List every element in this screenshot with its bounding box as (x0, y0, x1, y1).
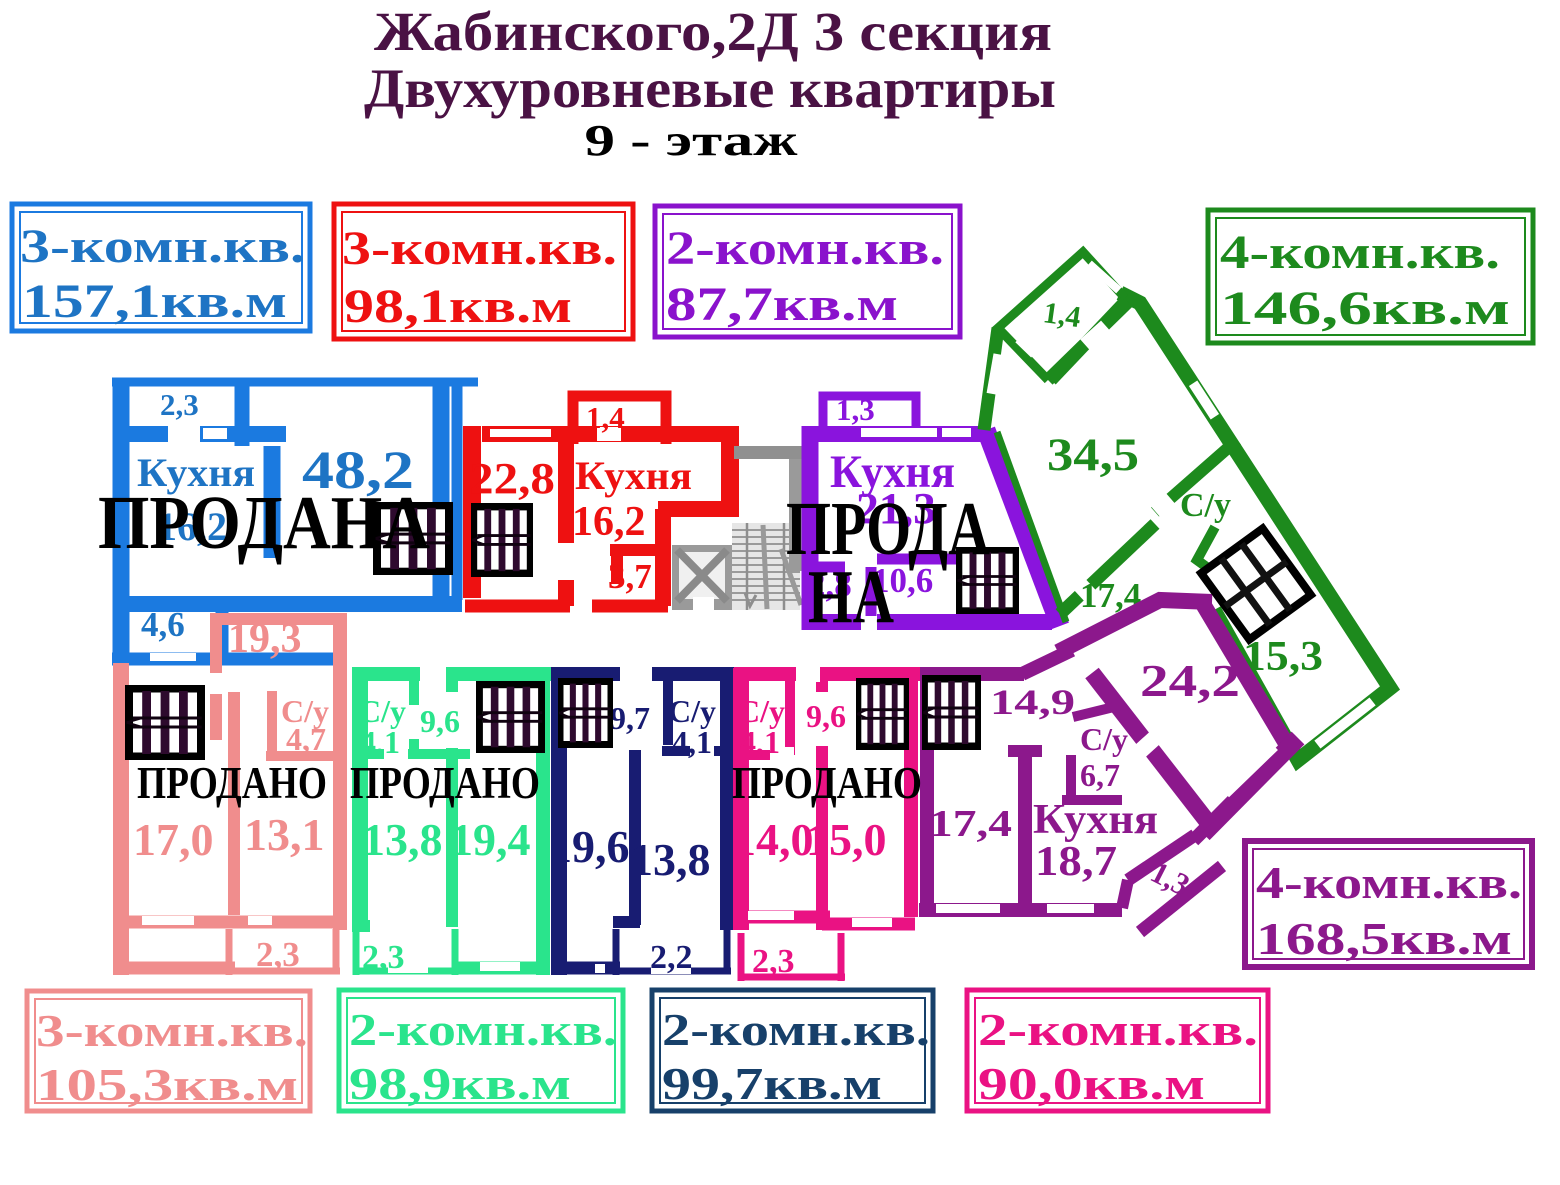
svg-text:ПРОДАНА: ПРОДАНА (98, 481, 430, 565)
svg-text:15,3: 15,3 (1243, 634, 1323, 680)
svg-text:16,2: 16,2 (572, 499, 646, 545)
svg-text:13,8: 13,8 (630, 834, 711, 885)
svg-text:9,6: 9,6 (806, 698, 846, 734)
svg-text:17,0: 17,0 (133, 814, 214, 865)
svg-text:14,0: 14,0 (733, 814, 814, 865)
svg-text:4,1: 4,1 (360, 724, 400, 760)
svg-text:87,7кв.м: 87,7кв.м (666, 278, 898, 331)
svg-text:Кухня: Кухня (1033, 797, 1158, 843)
svg-text:2,3: 2,3 (752, 943, 795, 980)
svg-text:4-комн.кв.: 4-комн.кв. (1256, 857, 1522, 908)
svg-text:13,1: 13,1 (244, 809, 325, 860)
svg-text:19,3: 19,3 (228, 616, 302, 662)
svg-text:4,1: 4,1 (740, 724, 780, 760)
svg-text:2,3: 2,3 (160, 387, 199, 422)
svg-text:17,4: 17,4 (929, 803, 1012, 845)
svg-text:3,7: 3,7 (608, 557, 652, 596)
svg-text:146,6кв.м: 146,6кв.м (1220, 282, 1510, 335)
svg-text:2,3: 2,3 (362, 939, 405, 976)
svg-text:18,7: 18,7 (1035, 839, 1117, 885)
svg-text:98,9кв.м: 98,9кв.м (349, 1058, 571, 1109)
svg-text:2-комн.кв.: 2-комн.кв. (978, 1004, 1258, 1055)
svg-text:105,3кв.м: 105,3кв.м (36, 1059, 298, 1110)
svg-text:6,7: 6,7 (1080, 757, 1120, 793)
svg-text:ПРОДАНО: ПРОДАНО (137, 758, 327, 808)
svg-text:Жабинского,2Д 3 секция: Жабинского,2Д 3 секция (374, 1, 1052, 62)
svg-text:9,7: 9,7 (610, 700, 650, 736)
svg-text:90,0кв.м: 90,0кв.м (978, 1058, 1205, 1109)
svg-text:34,5: 34,5 (1047, 429, 1139, 481)
svg-text:2-комн.кв.: 2-комн.кв. (349, 1004, 617, 1055)
svg-text:НА: НА (808, 555, 894, 639)
svg-text:4,6: 4,6 (141, 605, 185, 644)
svg-text:168,5кв.м: 168,5кв.м (1256, 913, 1512, 964)
svg-text:9 - этаж: 9 - этаж (585, 116, 798, 165)
svg-text:1,4: 1,4 (1041, 296, 1083, 334)
svg-text:4-комн.кв.: 4-комн.кв. (1220, 226, 1500, 279)
svg-text:14,9: 14,9 (990, 682, 1075, 722)
svg-text:Кухня: Кухня (575, 453, 692, 498)
svg-text:1,4: 1,4 (586, 400, 625, 435)
svg-text:98,1кв.м: 98,1кв.м (344, 280, 572, 333)
svg-text:9,6: 9,6 (420, 703, 460, 739)
svg-text:22,8: 22,8 (469, 454, 555, 503)
svg-text:4,7: 4,7 (286, 721, 326, 757)
svg-text:Двухуровневые квартиры: Двухуровневые квартиры (364, 58, 1056, 119)
svg-text:3-комн.кв.: 3-комн.кв. (36, 1005, 308, 1056)
svg-text:24,2: 24,2 (1140, 655, 1240, 706)
svg-text:157,1кв.м: 157,1кв.м (22, 275, 287, 328)
svg-text:19,6: 19,6 (549, 821, 630, 872)
svg-text:3-комн.кв.: 3-комн.кв. (20, 220, 305, 273)
svg-text:С/у: С/у (1180, 487, 1231, 524)
svg-text:2,3: 2,3 (256, 935, 300, 974)
svg-text:1,3: 1,3 (836, 392, 875, 427)
svg-text:19,4: 19,4 (450, 814, 531, 865)
svg-text:2-комн.кв.: 2-комн.кв. (666, 222, 944, 275)
svg-text:2-комн.кв.: 2-комн.кв. (662, 1004, 930, 1055)
svg-text:4,1: 4,1 (672, 724, 712, 760)
svg-text:2,2: 2,2 (650, 939, 693, 976)
svg-text:15,0: 15,0 (806, 814, 887, 865)
svg-text:13,8: 13,8 (362, 814, 443, 865)
svg-text:3-комн.кв.: 3-комн.кв. (342, 222, 617, 275)
svg-text:ПРОДАНО: ПРОДАНО (350, 758, 540, 808)
svg-text:ПРОДАНО: ПРОДАНО (732, 758, 922, 808)
svg-text:99,7кв.м: 99,7кв.м (662, 1058, 882, 1109)
svg-text:С/у: С/у (1080, 721, 1128, 757)
